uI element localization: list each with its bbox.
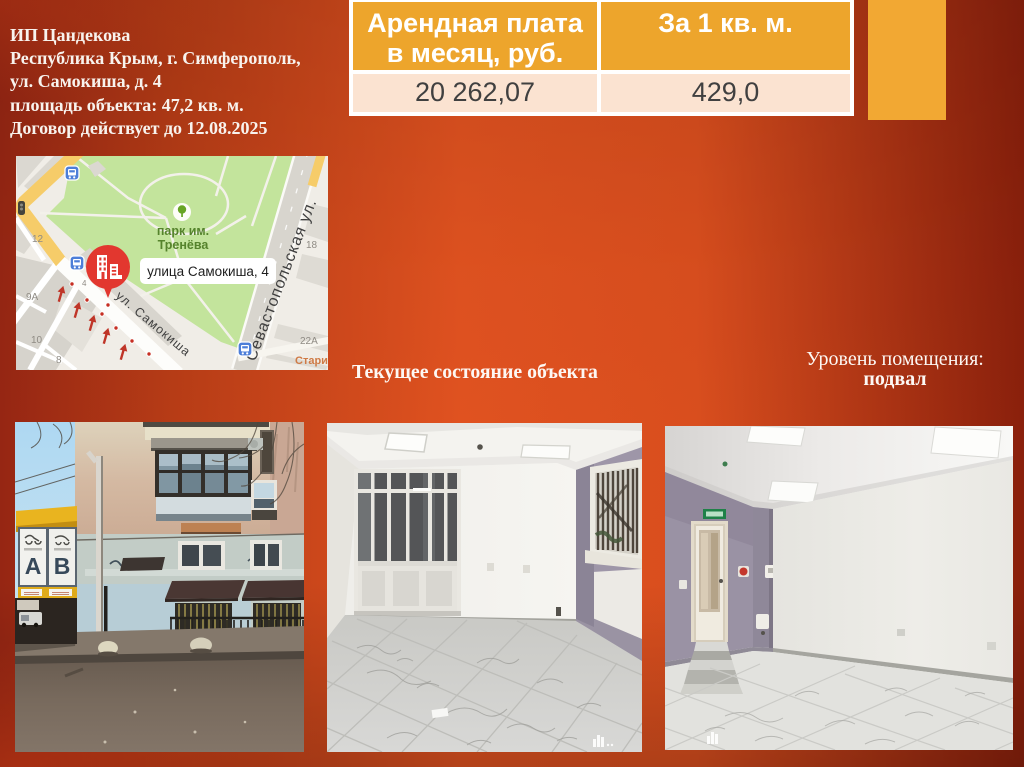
svg-text:улица Самокиша, 4: улица Самокиша, 4 [147,264,269,279]
svg-text:парк им.: парк им. [157,224,209,238]
svg-text:A: A [25,553,42,579]
svg-text:12: 12 [32,234,44,245]
svg-text:10: 10 [31,335,43,346]
svg-text:9A: 9A [26,292,39,303]
svg-text:8: 8 [56,355,62,366]
svg-text:22A: 22A [300,336,318,347]
svg-text:Старик: Старик [295,355,328,367]
svg-text:B: B [54,553,71,579]
svg-text:18: 18 [306,240,318,251]
svg-text:4: 4 [82,279,87,288]
svg-text:Тренёва: Тренёва [158,238,210,252]
